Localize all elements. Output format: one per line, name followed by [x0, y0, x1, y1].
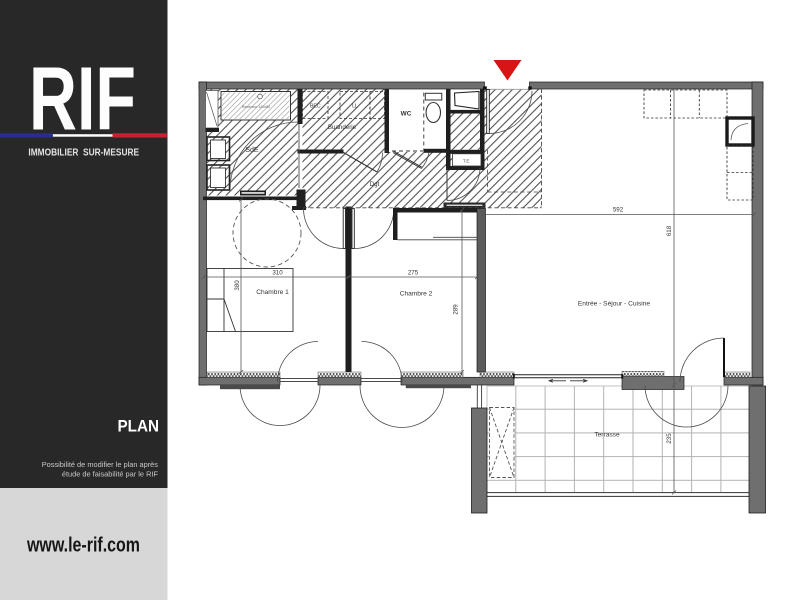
svg-text:380: 380: [234, 280, 241, 291]
svg-text:Dgt: Dgt: [370, 181, 380, 188]
svg-text:289: 289: [453, 304, 460, 315]
svg-text:Chambre 2: Chambre 2: [400, 291, 433, 298]
svg-text:618: 618: [666, 225, 673, 236]
svg-text:IMMOBILIER SUR-MESURE: IMMOBILIER SUR-MESURE: [28, 146, 139, 158]
svg-text:SdE: SdE: [245, 147, 259, 154]
svg-text:étude de faisabilité par le RI: étude de faisabilité par le RIF: [62, 469, 159, 478]
svg-text:592: 592: [613, 207, 624, 214]
svg-text:Possibilité de modifier le pla: Possibilité de modifier le plan après: [42, 460, 159, 469]
svg-text:Entrée - Séjour - Cuisine: Entrée - Séjour - Cuisine: [578, 301, 651, 308]
svg-text:Buanderie: Buanderie: [328, 124, 357, 131]
svg-text:LL: LL: [352, 104, 358, 110]
svg-text:Chambre 1: Chambre 1: [256, 289, 289, 296]
svg-text:BEC: BEC: [310, 104, 321, 110]
svg-text:310: 310: [272, 270, 283, 277]
svg-text:275: 275: [408, 270, 419, 277]
svg-text:Terrasse: Terrasse: [594, 432, 620, 439]
svg-text:PLAN: PLAN: [118, 417, 160, 436]
svg-text:www.le-rif.com: www.le-rif.com: [26, 535, 140, 557]
svg-text:T.E.: T.E.: [463, 159, 471, 164]
svg-text:Receveur 120x80: Receveur 120x80: [242, 105, 270, 109]
svg-text:WC: WC: [401, 111, 412, 118]
svg-text:235: 235: [666, 433, 673, 444]
